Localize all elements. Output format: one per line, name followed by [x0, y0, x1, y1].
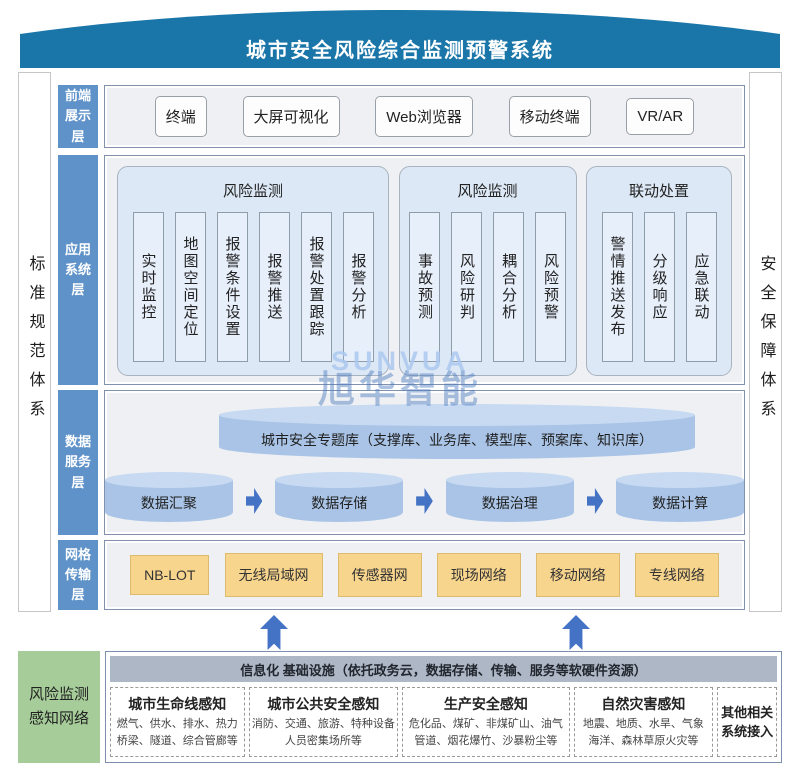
sensing-box-natural-disaster: 自然灾害感知 地震、地质、水旱、气象 海洋、森林草原火灾等 — [574, 687, 714, 757]
layer-label-network: 网格传输层 — [58, 540, 98, 610]
cylinder-label: 数据治理 — [482, 489, 538, 513]
flow-arrow-icon — [587, 488, 604, 514]
app-group-risk-monitoring-1: 风险监测 实时监控 地图空间定位 报警条件设置 报警推送 报警处置跟踪 报警分析 — [117, 166, 389, 376]
group-items: 实时监控 地图空间定位 报警条件设置 报警推送 报警处置跟踪 报警分析 — [133, 212, 374, 362]
network-item-field: 现场网络 — [437, 553, 521, 597]
app-item: 实时监控 — [133, 212, 164, 362]
app-group-linked-disposal: 联动处置 警情推送发布 分级响应 应急联动 — [586, 166, 732, 376]
network-item-wlan: 无线局域网 — [225, 553, 323, 597]
layer-label-network-text: 网格传输层 — [64, 545, 92, 605]
app-item: 风险研判 — [451, 212, 482, 362]
up-arrow-icon — [562, 615, 590, 650]
banner: 城市安全风险综合监测预警系统 — [20, 10, 780, 68]
sensing-box-lifeline: 城市生命线感知 燃气、供水、排水、热力 桥梁、隧道、综合管廊等 — [110, 687, 245, 757]
network-layer-row: NB-LOT 无线局域网 传感器网 现场网络 移动网络 专线网络 — [104, 540, 745, 610]
app-item: 地图空间定位 — [175, 212, 206, 362]
group-items: 事故预测 风险研判 耦合分析 风险预警 — [409, 212, 566, 362]
perception-network-label-box: 风险监测感知网络 — [18, 651, 100, 763]
pipeline-cylinder-aggregation: 数据汇聚 — [105, 480, 233, 522]
flow-arrow-icon — [416, 488, 433, 514]
layer-label-frontend-text: 前端展示层 — [64, 86, 92, 146]
sensing-box-line: 人员密集场所等 — [252, 733, 396, 750]
data-service-layer-row: 城市安全专题库（支撑库、业务库、模型库、预案库、知识库） 数据汇聚 数据存储 数… — [104, 390, 745, 535]
page-title: 城市安全风险综合监测预警系统 — [20, 34, 780, 63]
up-arrow-icon — [260, 615, 288, 650]
sensing-box-public-safety: 城市公共安全感知 消防、交通、旅游、特种设备 人员密集场所等 — [249, 687, 399, 757]
frontend-item-terminal: 终端 — [155, 96, 207, 137]
sensing-box-title: 生产安全感知 — [405, 694, 566, 714]
data-pipeline: 数据汇聚 数据存储 数据治理 数据计算 — [105, 480, 744, 522]
network-item-mobile: 移动网络 — [536, 553, 620, 597]
network-item-nb-lot: NB-LOT — [130, 555, 209, 595]
layer-label-frontend: 前端展示层 — [58, 85, 98, 148]
sensing-box-title: 其他相关系统接入 — [720, 703, 774, 742]
sensing-box-line: 危化品、煤矿、非煤矿山、油气 — [405, 716, 566, 733]
frontend-item-mobile: 移动终端 — [509, 96, 591, 137]
app-group-risk-monitoring-2: 风险监测 事故预测 风险研判 耦合分析 风险预警 — [399, 166, 577, 376]
pipeline-cylinder-storage: 数据存储 — [275, 480, 403, 522]
layer-label-data-service: 数据服务层 — [58, 390, 98, 535]
network-item-private-line: 专线网络 — [635, 553, 719, 597]
sensing-box-line: 地震、地质、水旱、气象 — [577, 716, 711, 733]
pillar-standards: 标准规范体系 — [18, 72, 51, 612]
app-item: 报警推送 — [259, 212, 290, 362]
network-item-sensor: 传感器网 — [338, 553, 422, 597]
app-item: 事故预测 — [409, 212, 440, 362]
app-item: 报警处置跟踪 — [301, 212, 332, 362]
layer-label-data-service-text: 数据服务层 — [64, 432, 92, 492]
cylinder-label: 数据汇聚 — [141, 489, 197, 513]
app-item: 风险预警 — [535, 212, 566, 362]
pillar-security-label: 安全保障体系 — [754, 255, 778, 429]
pillar-security: 安全保障体系 — [749, 72, 782, 612]
app-item: 耦合分析 — [493, 212, 524, 362]
sensing-box-line: 海洋、森林草原火灾等 — [577, 733, 711, 750]
architecture-diagram: 城市安全风险综合监测预警系统 标准规范体系 安全保障体系 前端展示层 应用系统层… — [0, 0, 800, 775]
frontend-item-web-browser: Web浏览器 — [375, 96, 473, 137]
app-item: 应急联动 — [686, 212, 717, 362]
sensing-box-production-safety: 生产安全感知 危化品、煤矿、非煤矿山、油气 管道、烟花爆竹、沙暴粉尘等 — [402, 687, 569, 757]
sensing-box-line: 桥梁、隧道、综合管廊等 — [113, 733, 242, 750]
sensing-boxes: 城市生命线感知 燃气、供水、排水、热力 桥梁、隧道、综合管廊等 城市公共安全感知… — [110, 687, 777, 757]
perception-network-label: 风险监测感知网络 — [28, 683, 90, 731]
sensing-box-title: 城市生命线感知 — [113, 694, 242, 714]
frontend-layer-row: 终端 大屏可视化 Web浏览器 移动终端 VR/AR — [104, 85, 745, 148]
group-title: 联动处置 — [629, 180, 689, 201]
sensing-box-title: 自然灾害感知 — [577, 694, 711, 714]
group-title: 风险监测 — [457, 180, 517, 201]
cylinder-label: 数据存储 — [311, 489, 367, 513]
infrastructure-header: 信息化 基础设施（依托政务云，数据存储、传输、服务等软硬件资源） — [110, 656, 777, 682]
cylinder-label: 数据计算 — [652, 489, 708, 513]
database-label: 城市安全专题库（支撑库、业务库、模型库、预案库、知识库） — [261, 424, 653, 450]
sensing-box-line: 管道、烟花爆竹、沙暴粉尘等 — [405, 733, 566, 750]
sensing-box-line: 消防、交通、旅游、特种设备 — [252, 716, 396, 733]
pipeline-cylinder-computing: 数据计算 — [616, 480, 744, 522]
sensing-box-title: 城市公共安全感知 — [252, 694, 396, 714]
layer-label-application-text: 应用系统层 — [64, 240, 92, 300]
app-item: 报警条件设置 — [217, 212, 248, 362]
group-items: 警情推送发布 分级响应 应急联动 — [602, 212, 717, 362]
pipeline-cylinder-governance: 数据治理 — [446, 480, 574, 522]
app-item: 警情推送发布 — [602, 212, 633, 362]
database-cylinder: 城市安全专题库（支撑库、业务库、模型库、预案库、知识库） — [219, 415, 695, 459]
pillar-standards-label: 标准规范体系 — [23, 255, 47, 429]
infrastructure-container: 信息化 基础设施（依托政务云，数据存储、传输、服务等软硬件资源） 城市生命线感知… — [105, 651, 782, 763]
app-item: 报警分析 — [343, 212, 374, 362]
application-layer-row: 风险监测 实时监控 地图空间定位 报警条件设置 报警推送 报警处置跟踪 报警分析… — [104, 155, 745, 385]
sensing-box-line: 燃气、供水、排水、热力 — [113, 716, 242, 733]
flow-arrow-icon — [246, 488, 263, 514]
app-item: 分级响应 — [644, 212, 675, 362]
frontend-item-vr-ar: VR/AR — [626, 98, 694, 135]
sensing-box-other-systems: 其他相关系统接入 — [717, 687, 777, 757]
group-title: 风险监测 — [223, 180, 283, 201]
layer-label-application: 应用系统层 — [58, 155, 98, 385]
frontend-item-big-screen: 大屏可视化 — [243, 96, 340, 137]
